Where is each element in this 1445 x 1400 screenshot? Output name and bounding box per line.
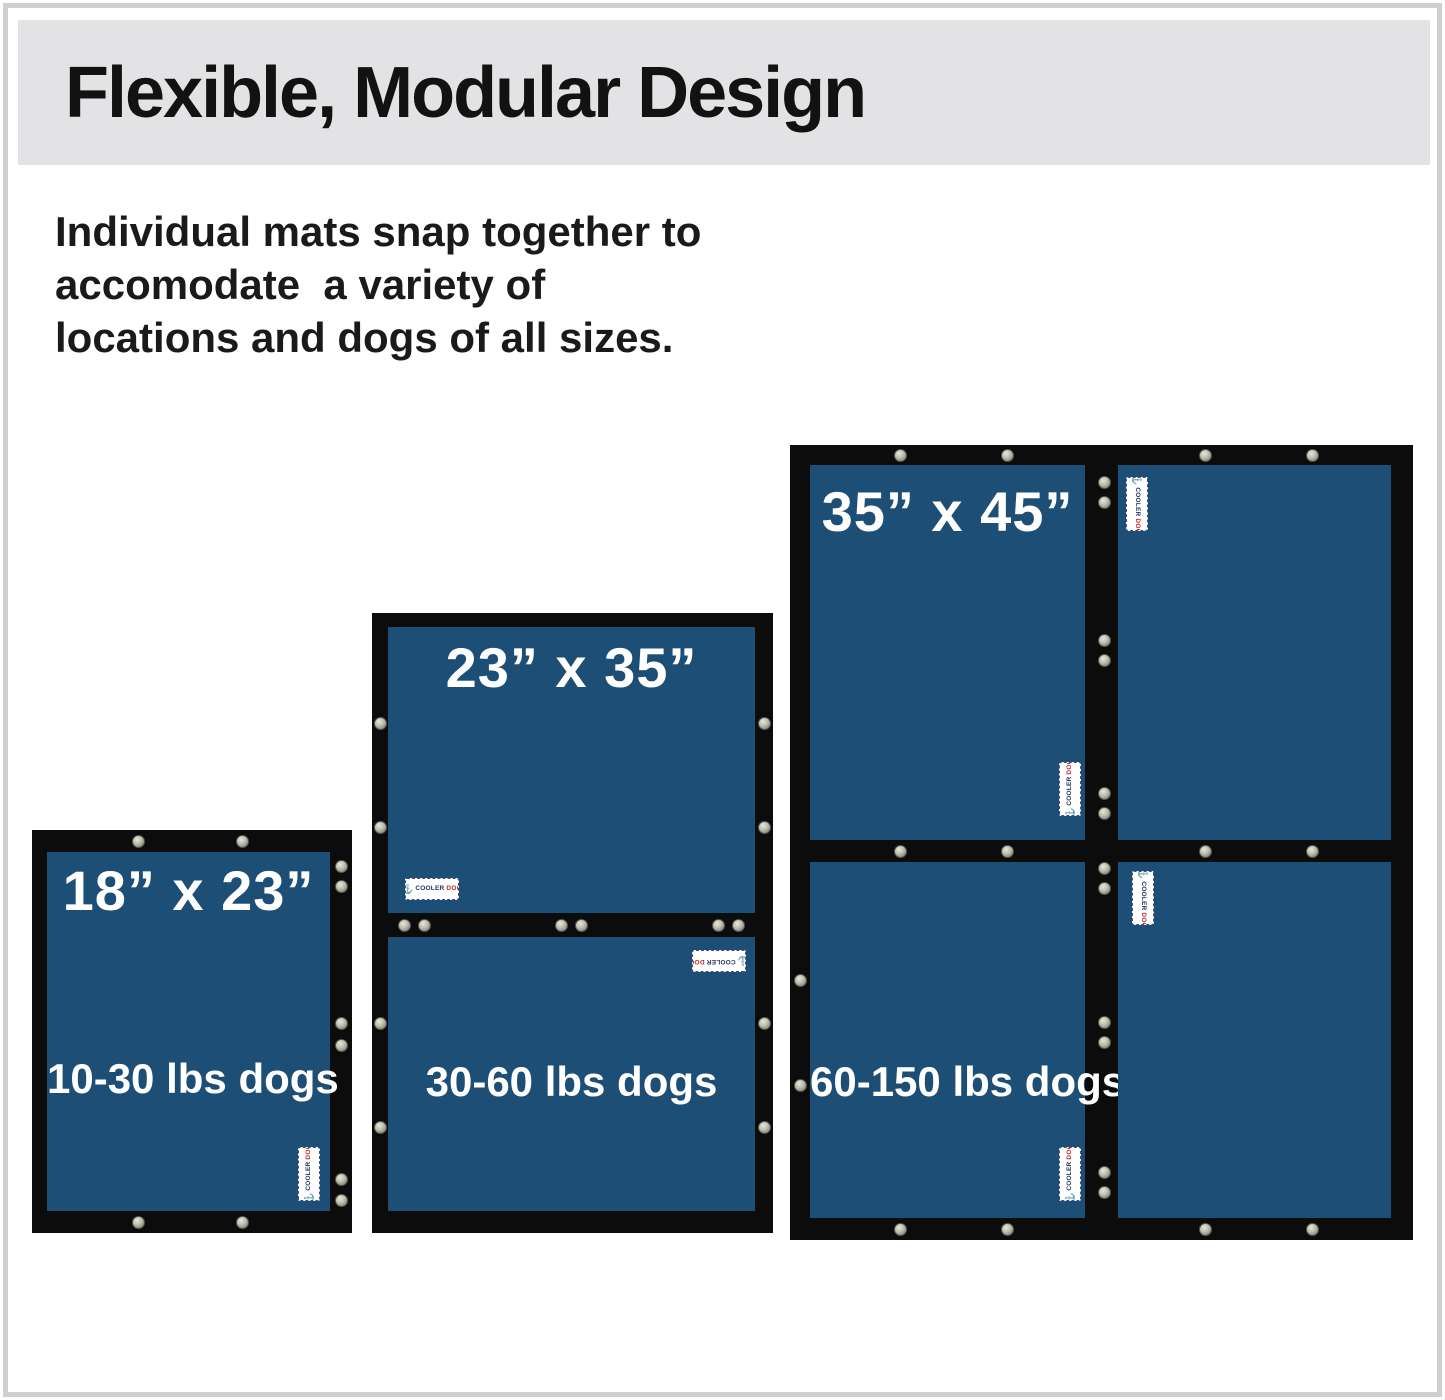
weight-label-small: 10-30 lbs dogs [47, 1056, 330, 1102]
anchor-logo-icon: ⚓ [305, 1193, 314, 1201]
mat-35x45-bottom-right [1118, 862, 1391, 1218]
snap-fastener-icon [894, 1223, 907, 1236]
snap-fastener-icon [374, 717, 387, 730]
snap-fastener-icon [418, 919, 431, 932]
snap-fastener-icon [758, 821, 771, 834]
snap-fastener-icon [132, 835, 145, 848]
brand-tag: ⚓ COOLER DOG [300, 1148, 320, 1202]
header-banner: Flexible, Modular Design [18, 20, 1430, 165]
mat-23x35-top: 23” x 35” [388, 627, 755, 913]
snap-fastener-icon [236, 835, 249, 848]
snap-fastener-icon [374, 1017, 387, 1030]
snap-fastener-icon [335, 1173, 348, 1186]
snap-fastener-icon [1098, 862, 1111, 875]
snap-fastener-icon [758, 1121, 771, 1134]
snap-fastener-icon [1199, 449, 1212, 462]
description-line-1: Individual mats snap together to [55, 205, 701, 258]
weight-label-medium: 30-60 lbs dogs [388, 1059, 755, 1105]
snap-fastener-icon [758, 717, 771, 730]
mat-18x23: 18” x 23” 10-30 lbs dogs [47, 852, 330, 1211]
brand-tag-label: COOLER DOG [415, 886, 459, 893]
snap-fastener-icon [335, 1194, 348, 1207]
description-text: Individual mats snap together to accomod… [55, 205, 701, 364]
anchor-logo-icon: ⚓ [1133, 477, 1142, 485]
snap-fastener-icon [794, 974, 807, 987]
snap-fastener-icon [335, 1039, 348, 1052]
mat-group-large: 35” x 45” 60-150 lbs dogs [790, 445, 1413, 1240]
snap-fastener-icon [732, 919, 745, 932]
snap-fastener-icon [335, 1017, 348, 1030]
anchor-logo-icon: ⚓ [1066, 1193, 1075, 1201]
anchor-logo-icon: ⚓ [1066, 808, 1075, 816]
size-label-large: 35” x 45” [810, 481, 1085, 543]
brand-tag-label: COOLER DOG [692, 958, 736, 965]
anchor-logo-icon: ⚓ [738, 957, 746, 966]
anchor-logo-icon: ⚓ [1139, 871, 1148, 879]
snap-fastener-icon [1098, 654, 1111, 667]
snap-fastener-icon [1098, 882, 1111, 895]
snap-fastener-icon [1098, 1166, 1111, 1179]
snap-fastener-icon [894, 845, 907, 858]
mat-23x35-bottom: 30-60 lbs dogs [388, 937, 755, 1211]
snap-fastener-icon [1306, 1223, 1319, 1236]
snap-fastener-icon [132, 1216, 145, 1229]
size-label-medium: 23” x 35” [388, 637, 755, 699]
brand-tag-label: COOLER DOG [1067, 1147, 1074, 1191]
snap-fastener-icon [1098, 496, 1111, 509]
anchor-logo-icon: ⚓ [405, 885, 413, 894]
brand-tag-label: COOLER DOG [306, 1147, 313, 1191]
product-infographic: Flexible, Modular Design Individual mats… [0, 0, 1445, 1400]
snap-fastener-icon [1001, 1223, 1014, 1236]
snap-fastener-icon [794, 1079, 807, 1092]
size-label-small: 18” x 23” [47, 860, 330, 922]
snap-fastener-icon [758, 1017, 771, 1030]
snap-fastener-icon [1098, 807, 1111, 820]
brand-tag: ⚓ COOLER DOG [1134, 872, 1154, 926]
brand-tag-label: COOLER DOG [1067, 762, 1074, 806]
mat-35x45-top-left: 35” x 45” [810, 465, 1085, 840]
brand-tag-label: COOLER DOG [1140, 881, 1147, 925]
brand-tag: ⚓ COOLER DOG [692, 950, 746, 972]
snap-fastener-icon [374, 1121, 387, 1134]
snap-fastener-icon [894, 449, 907, 462]
brand-tag: ⚓ COOLER DOG [405, 878, 459, 900]
snap-fastener-icon [1306, 449, 1319, 462]
snap-fastener-icon [712, 919, 725, 932]
mat-35x45-top-right [1118, 465, 1391, 840]
snap-fastener-icon [374, 821, 387, 834]
page-title: Flexible, Modular Design [18, 52, 865, 134]
snap-fastener-icon [1001, 845, 1014, 858]
description-line-3: locations and dogs of all sizes. [55, 311, 701, 364]
snap-fastener-icon [1306, 845, 1319, 858]
snap-fastener-icon [1199, 845, 1212, 858]
snap-fastener-icon [1199, 1223, 1212, 1236]
mat-35x45-bottom-left: 60-150 lbs dogs [810, 862, 1085, 1218]
snap-fastener-icon [575, 919, 588, 932]
description-line-2: accomodate a variety of [55, 258, 701, 311]
snap-fastener-icon [1098, 634, 1111, 647]
snap-fastener-icon [398, 919, 411, 932]
snap-fastener-icon [236, 1216, 249, 1229]
weight-label-large: 60-150 lbs dogs [810, 1059, 1085, 1105]
snap-fastener-icon [1098, 1036, 1111, 1049]
snap-fastener-icon [335, 880, 348, 893]
snap-fastener-icon [1098, 476, 1111, 489]
snap-fastener-icon [555, 919, 568, 932]
snap-fastener-icon [1098, 1016, 1111, 1029]
brand-tag: ⚓ COOLER DOG [1128, 478, 1148, 532]
snap-fastener-icon [335, 860, 348, 873]
brand-tag: ⚓ COOLER DOG [1061, 1148, 1081, 1202]
brand-tag: ⚓ COOLER DOG [1061, 763, 1081, 817]
snap-fastener-icon [1001, 449, 1014, 462]
mat-group-medium: 23” x 35” 30-60 lbs dogs ⚓ COOLER DOG ⚓ … [372, 613, 773, 1233]
snap-fastener-icon [1098, 787, 1111, 800]
brand-tag-label: COOLER DOG [1134, 487, 1141, 531]
mat-group-small: 18” x 23” 10-30 lbs dogs ⚓ COOLER DOG [32, 830, 352, 1233]
snap-fastener-icon [1098, 1186, 1111, 1199]
